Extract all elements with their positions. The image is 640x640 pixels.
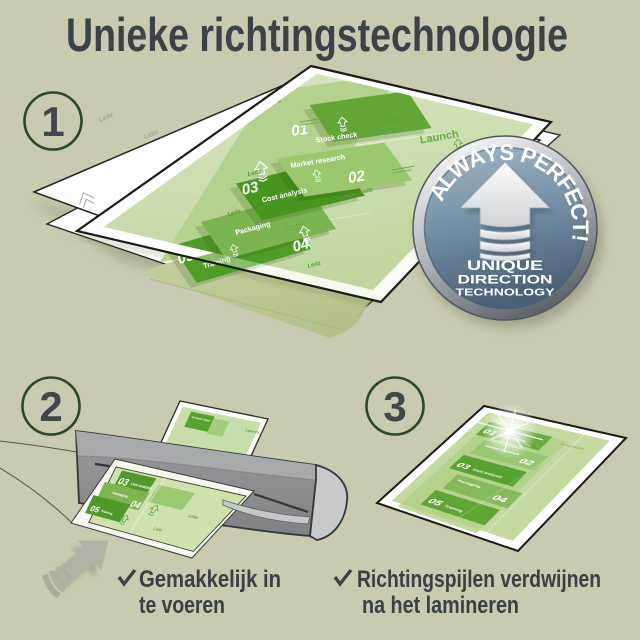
svg-text:Richtingspijlen verdwijnen: Richtingspijlen verdwijnen bbox=[357, 566, 601, 593]
svg-text:3: 3 bbox=[383, 383, 406, 430]
svg-text:02: 02 bbox=[347, 167, 367, 187]
svg-text:UNIQUE: UNIQUE bbox=[467, 258, 543, 273]
svg-text:Unieke richtingstechnologie: Unieke richtingstechnologie bbox=[66, 8, 568, 61]
svg-text:TECHNOLOGY: TECHNOLOGY bbox=[456, 287, 555, 299]
svg-text:2: 2 bbox=[39, 383, 62, 430]
svg-text:na het lamineren: na het lamineren bbox=[362, 592, 519, 619]
svg-text:01: 01 bbox=[290, 121, 309, 140]
svg-text:S: S bbox=[499, 140, 515, 165]
svg-text:Gemakkelijk in: Gemakkelijk in bbox=[139, 566, 281, 593]
svg-text:1: 1 bbox=[41, 98, 64, 145]
svg-text:DIRECTION: DIRECTION bbox=[458, 275, 553, 287]
svg-text:te voeren: te voeren bbox=[139, 592, 225, 619]
